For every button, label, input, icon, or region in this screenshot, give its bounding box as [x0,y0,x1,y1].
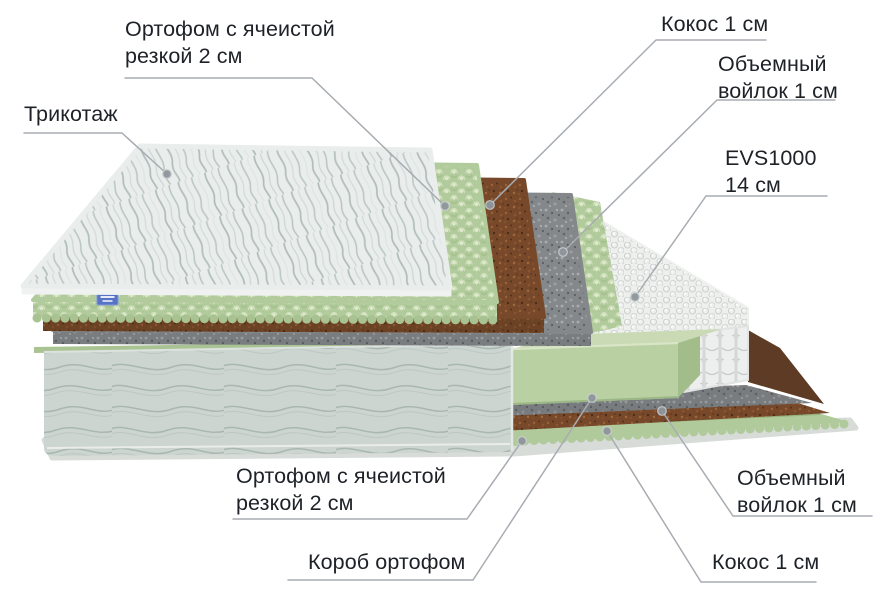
body-front-face [44,344,513,456]
label-korob-ortofom: Короб ортофом [308,549,465,576]
mattress-layers-diagram: Ортофом с ячеистой резкой 2 см Трикотаж … [0,0,874,599]
dot-evs [631,293,640,302]
label-voilok-bottom: Объемный войлок 1 см [737,465,857,519]
layer-ortofom-top-scallops [37,318,494,320]
label-kokos-bottom: Кокос 1 см [712,549,819,576]
dot-voilok-bottom [658,407,667,416]
label-kokos-top: Кокос 1 см [661,11,768,38]
layer-trikotazh-top [23,146,450,288]
label-evs1000: EVS1000 14 см [725,145,817,199]
dot-trikotazh [163,170,172,179]
label-voilok-top: Объемный войлок 1 см [718,51,838,105]
dot-kokos-top [486,201,495,210]
dot-ortofom-bottom [518,437,527,446]
dot-voilok-top [559,248,568,257]
label-trikotazh: Трикотаж [24,101,118,128]
dot-kokos-bottom [603,427,612,436]
dot-korob [588,394,597,403]
label-ortofom-bottom: Ортофом с ячеистой резкой 2 см [236,463,446,517]
dot-ortofom-top [441,202,450,211]
label-ortofom-top: Ортофом с ячеистой резкой 2 см [125,16,335,70]
